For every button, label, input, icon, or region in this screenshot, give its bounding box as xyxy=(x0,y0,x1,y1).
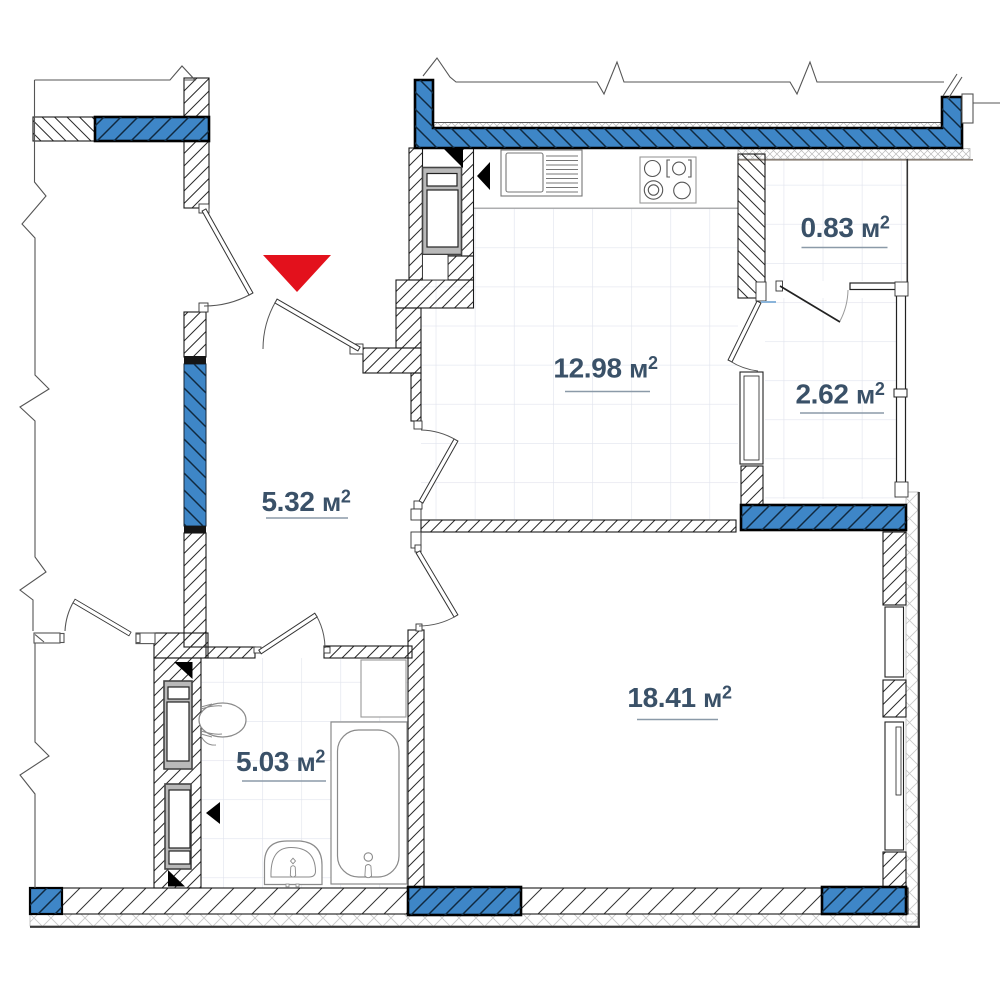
svg-text:5.32 м2: 5.32 м2 xyxy=(261,486,350,517)
svg-text:2.62 м2: 2.62 м2 xyxy=(795,379,884,410)
svg-text:5.03 м2: 5.03 м2 xyxy=(236,746,325,777)
svg-text:12.98 м2: 12.98 м2 xyxy=(553,353,658,384)
svg-text:0.83 м2: 0.83 м2 xyxy=(800,212,889,243)
svg-text:18.41 м2: 18.41 м2 xyxy=(627,682,732,713)
